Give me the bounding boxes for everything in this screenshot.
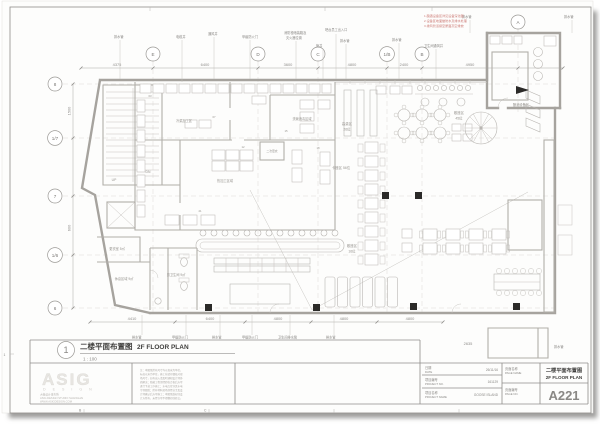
drawing-scale: 1 : 100 (83, 357, 97, 362)
callout-b-fire-door-2: 甲级防火门 (242, 335, 258, 340)
dim-bottom-right: 2635 (464, 341, 473, 346)
dim-top-6: 4950 (466, 62, 475, 67)
dim-left-1: 1500 (67, 106, 72, 115)
red-note-3: 3.排风管道接至屋面高空排放 (424, 23, 464, 28)
callout-staff-entry: 吧台员工出入口 (325, 27, 347, 32)
dim-bottom-3: 4800 (274, 316, 283, 321)
date-value: 26/11/16 (486, 368, 498, 372)
dim-top-4: 4800 (348, 62, 357, 67)
page-no-label-en: PAGE NO. (505, 392, 519, 396)
grid-bubble-7: 7 (54, 194, 57, 199)
callout-drain-1: 排水管 (114, 34, 124, 39)
project-name-label-en: PROJECT NAME (425, 395, 447, 399)
grid-bubble-16: 1/6 (52, 253, 59, 258)
red-notes: 1.酿酒设备区详见设备深化图 2.设备区地面做防水及排水处理 3.排风管道接至屋… (424, 13, 467, 28)
drawing-title-en: 2F FLOOR PLAN (137, 344, 189, 351)
callout-vent-shaft: 通风井 (208, 31, 218, 36)
grid-bubble-17: 1/7 (52, 136, 59, 141)
equip-tag-3: 12 (241, 145, 245, 149)
hot-kitchen-label: 热加工区域 (217, 178, 234, 183)
callout-drain-5: 排水管 (564, 14, 574, 19)
logo-sub: D E S I G N (43, 388, 95, 392)
callout-b-drain-1: 排水管 (132, 335, 142, 340)
project-name-value: GOOSE ISLAND (474, 393, 499, 397)
equip-tag-4: 15 (284, 129, 288, 133)
dim-top-3: 3600 (284, 62, 293, 67)
logo-line1: 大椽设计事务所 (40, 393, 59, 397)
callout-hydrant-2: 灭火器位置 (286, 35, 302, 40)
page-no-value: A221 (548, 388, 579, 403)
equip-tag-6: 21 (198, 209, 202, 213)
grid-bubble-1B: 1/B (384, 52, 391, 57)
callout-cable-shaft: 电缆井 (176, 34, 186, 39)
project-no-label-en: PROJECT NO. (425, 382, 444, 386)
callout-fire-door-top: 甲级防火门 (242, 34, 258, 39)
callout-drain-3: 排水管 (392, 37, 402, 42)
callout-b-fire-door-1: 甲级防火门 (172, 335, 188, 340)
grid-bubble-8: 8 (54, 82, 57, 87)
grid-bubble-E: E (151, 52, 154, 57)
notes-line-3: 场尺寸，如有出入请及时通知设计师协 (140, 376, 183, 380)
stair-dn-label: DN (146, 170, 151, 174)
page-name-value-en: 2F FLOOR PLAN (546, 375, 583, 380)
high-table-zone-label: 高桌区 (342, 121, 353, 126)
stair-up-label: UP (112, 178, 117, 182)
logo-line2: ASIG DESIGN STUDIO SHANGHAI (40, 396, 83, 400)
project-no-value: 161129 (488, 380, 499, 384)
dim-top-2: 6400 (201, 62, 210, 67)
booth-zone-label: 卡座区 56位 (332, 165, 351, 170)
callout-wc-vent: 卫生间通风井 (424, 43, 443, 48)
red-note-2: 2.设备区地面做防水及排水处理 (424, 18, 467, 23)
rest-area-label: 休息区域 9㎡ (115, 276, 134, 281)
mens-room-label: 男卫生间 9㎡ (167, 272, 186, 277)
locker-room-label: 更衣室 5㎡ (109, 246, 125, 251)
callout-b-drain-3: 排水管 (326, 335, 336, 340)
callout-drain-2: 排水管 (340, 38, 350, 43)
logo-name: ASIG (42, 370, 92, 389)
callout-b-wc-drain: 卫生间排水管 (278, 335, 297, 340)
dim-bottom-1: 4410 (128, 316, 137, 321)
floor-plan-svg: B C 1 E D C 1/B B A 8 1/7 7 1/6 6 4375 6… (0, 0, 600, 424)
callout-hydrant-1: 消防栓暗装箱及 (284, 30, 307, 35)
dim-bottom-5: 4800 (406, 316, 415, 321)
drawing-sheet: B C 1 E D C 1/B B A 8 1/7 7 1/6 6 4375 6… (0, 0, 600, 424)
paper (2, 1, 593, 413)
loose-seat-zone-label: 散座区 (454, 110, 465, 115)
second-change-label: 二次更衣 (266, 149, 277, 153)
notes-line-2: 标高以米为单位，施工前请仔细核对现 (140, 372, 183, 376)
callout-b-drain-4: 排水管 (554, 344, 564, 349)
dim-left-2: 600 (67, 224, 72, 231)
logo-line3: WWW.ASIGDESIGN.COM (40, 400, 73, 404)
drawing-title-cn: 二楼平面布置图 (80, 341, 133, 351)
loose-seat-zone-seats: 45位 (455, 116, 463, 121)
bar-zone-seats: 16位 (348, 249, 356, 254)
notes-line-5: 进行下道工序施工；水电点位详见水电 (140, 384, 183, 388)
notes-line-7: 计师确认后方可施工；本图纸版权归设 (140, 392, 183, 396)
notes-line-4: 商解决；隐蔽工程须经验收合格后方可 (140, 380, 183, 384)
dim-top-5: 2400 (400, 62, 409, 67)
cold-kitchen-label: 冷菜加工区 (176, 118, 193, 123)
dim-bottom-2: 6400 (206, 316, 215, 321)
zone-number-left: 1 (4, 353, 6, 357)
grid-bubble-6: 6 (54, 306, 57, 311)
grid-bubble-B: B (420, 52, 423, 57)
red-note-1: 1.酿酒设备区详见设备深化图 (424, 13, 464, 18)
callout-pipe-shaft: 管井 (316, 43, 322, 48)
equip-tag-2: 07 (212, 115, 216, 119)
page-name-label-en: PAGE NAME (505, 371, 522, 375)
page-name-value-cn: 二楼平面布置图 (546, 366, 582, 374)
notes-line-6: 专项图纸；所有材料进场须经业主及设 (140, 388, 183, 392)
equip-tag-1: 03 (148, 94, 152, 98)
notes-line-1: 注：本图纸所有尺寸均以毫米为单位， (140, 368, 183, 372)
callout-b-drain-2: 排水管 (212, 335, 222, 340)
bar-zone-label: 散座区 (347, 243, 358, 248)
spoke-feature (465, 112, 497, 144)
dishwash-label: 洗碗消毒区域 (292, 116, 312, 121)
dim-bottom-4: 4800 (340, 316, 349, 321)
date-label-en: DATE (425, 370, 432, 374)
high-table-zone-seats: 26位 (343, 127, 351, 132)
drawing-number: 1 (63, 345, 68, 355)
notes-line-8: 计方所有，未经许可不得翻印或转交。 (140, 396, 183, 400)
equip-tag-5: 18 (316, 146, 320, 150)
